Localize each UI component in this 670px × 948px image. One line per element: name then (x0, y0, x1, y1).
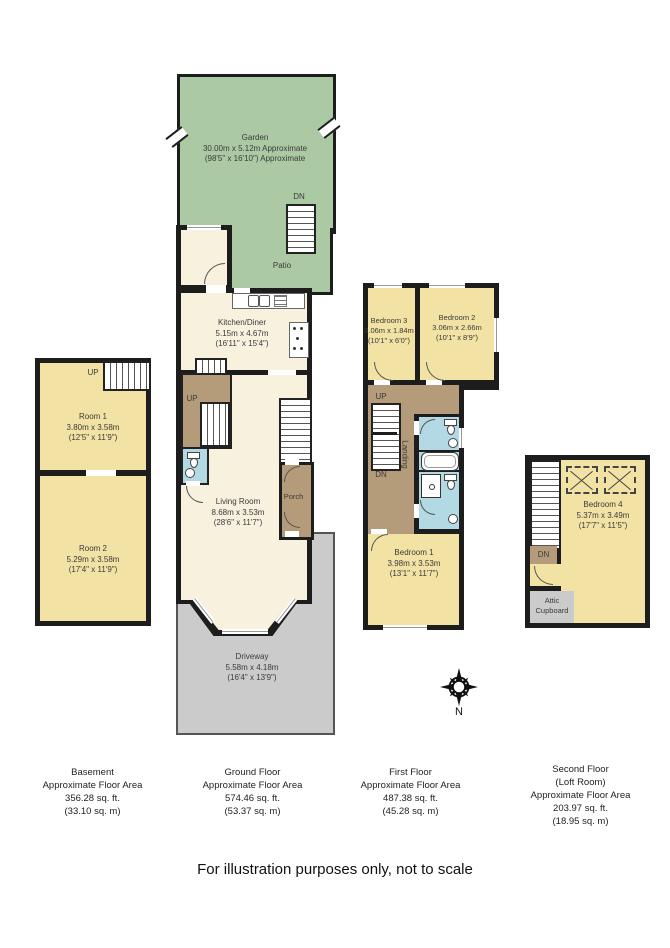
sink-icon (448, 438, 458, 448)
skylight-icon (566, 466, 598, 494)
up-label: UP (84, 368, 102, 377)
disclaimer-text: For illustration purposes only, not to s… (0, 861, 670, 878)
bedroom1-label: Bedroom 1 3.98m x 3.53m (13'1" x 11'7") (371, 548, 457, 580)
sink-icon (448, 514, 458, 524)
door-opening (86, 470, 116, 476)
toilet-icon (187, 452, 200, 459)
door-opening (374, 380, 390, 385)
window (459, 428, 464, 448)
stairs-divider (371, 432, 397, 435)
bedroom2-label: Bedroom 2 3.06m x 2.66m (10'1" x 8'9") (420, 313, 494, 343)
basement-stairs (103, 361, 151, 391)
first-floor-area-label: First Floor Approximate Floor Area 487.3… (338, 766, 483, 818)
toilet-icon (444, 474, 457, 481)
compass-icon (440, 668, 478, 706)
sink-icon (185, 468, 195, 478)
door-opening (414, 421, 419, 435)
window (494, 318, 499, 352)
garden-label: Garden 30.00m x 5.12m Approximate (98'5"… (180, 133, 330, 165)
room1-label: Room 1 3.80m x 3.58m (12'5" x 11'9") (43, 412, 143, 444)
hob-icon (274, 295, 287, 307)
up-label: UP (183, 394, 201, 403)
bedroom4-label: Bedroom 4 5.37m x 3.49m (17'7" x 11'5") (557, 500, 649, 532)
door-opening (268, 370, 296, 375)
window (187, 225, 221, 230)
dn-label: DN (530, 550, 557, 559)
patio-label: Patio (257, 261, 307, 272)
bathtub-icon (421, 452, 459, 471)
compass-north-label: N (445, 706, 473, 718)
up-label: UP (368, 392, 394, 401)
toilet-icon (444, 419, 457, 426)
hall-stairs (279, 398, 312, 466)
bedroom3-label: Bedroom 3 3.06m x 1.84m (10'1" x 6'0") (359, 316, 419, 346)
kitchen-sink-icon (248, 295, 259, 307)
kitchen-sink-icon (259, 295, 270, 307)
attic-cupboard-label: Attic Cupboard (529, 596, 575, 616)
bay-window (222, 629, 268, 634)
ground-floor-area-label: Ground Floor Approximate Floor Area 574.… (180, 766, 325, 818)
door-opening (285, 459, 299, 465)
porch-label: Porch (279, 492, 308, 502)
door-opening (206, 285, 226, 293)
shower-icon (421, 474, 441, 498)
second-floor-area-label: Second Floor (Loft Room) Approximate Flo… (508, 763, 653, 828)
window (374, 283, 402, 288)
basement-area-label: Basement Approximate Floor Area 356.28 s… (20, 766, 165, 818)
window (429, 283, 465, 288)
door-opening (285, 531, 299, 537)
wc-room (181, 447, 209, 485)
driveway-label: Driveway 5.58m x 4.18m (16'4" x 13'9") (192, 652, 312, 684)
door-opening (414, 504, 419, 518)
skylight-icon (604, 466, 636, 494)
landing-stairs (371, 403, 401, 471)
dn-label: DN (368, 470, 394, 479)
kitchen-label: Kitchen/Diner 5.15m x 4.67m (16'11" x 15… (182, 318, 302, 350)
door-opening (426, 380, 442, 385)
ground-up-stairs (200, 402, 230, 447)
window (383, 625, 427, 630)
landing-label: Landing (401, 436, 410, 474)
floor-plan: DN Garden 30.00m x 5.12m Approximate (98… (0, 0, 670, 948)
garden-stairs (286, 204, 316, 254)
garden-stairs-dn-label: DN (286, 192, 312, 201)
room2-label: Room 2 5.29m x 3.58m (17'4" x 11'9") (43, 544, 143, 576)
